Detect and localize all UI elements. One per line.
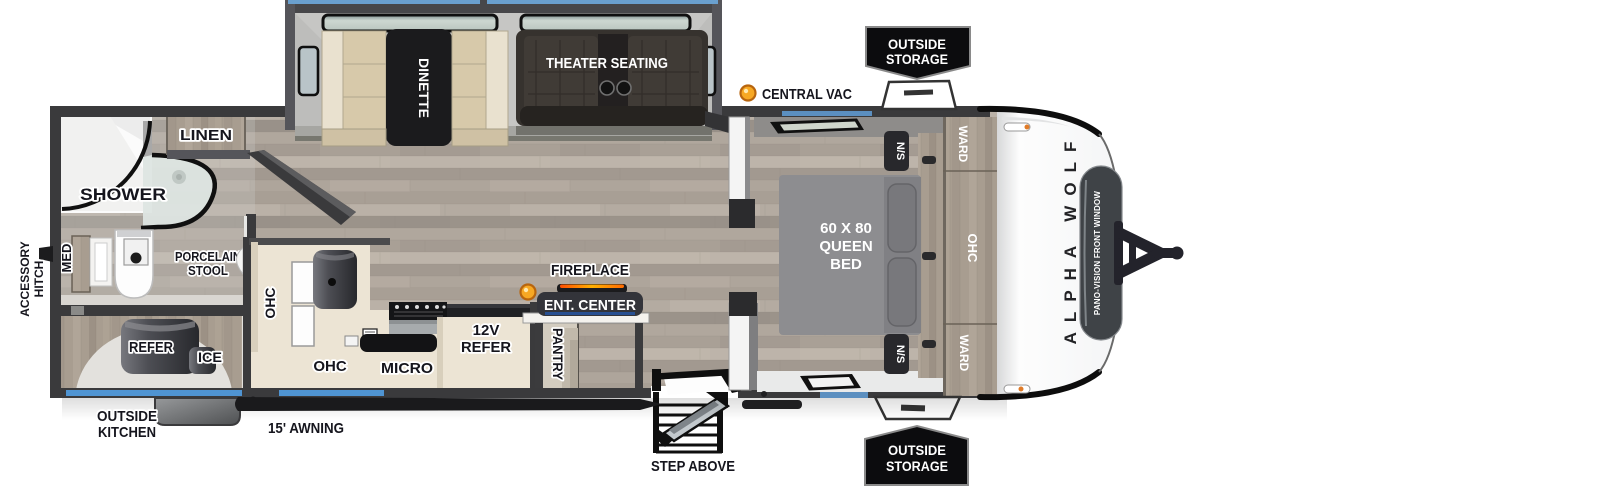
svg-text:PANTRY: PANTRY <box>550 328 566 381</box>
svg-text:OUTSIDE: OUTSIDE <box>97 408 157 425</box>
svg-text:OUTSIDE: OUTSIDE <box>888 37 946 52</box>
svg-text:PANO-VISION FRONT WINDOW: PANO-VISION FRONT WINDOW <box>1093 191 1102 315</box>
svg-text:WARD: WARD <box>956 126 970 163</box>
svg-text:QUEEN: QUEEN <box>819 238 872 255</box>
svg-text:BED: BED <box>830 256 862 273</box>
svg-text:STOOL: STOOL <box>188 263 228 278</box>
svg-text:MICRO: MICRO <box>381 360 433 377</box>
svg-text:OUTSIDE: OUTSIDE <box>888 443 946 458</box>
svg-text:OHC: OHC <box>262 287 278 318</box>
svg-text:REFER: REFER <box>129 339 173 356</box>
svg-text:STORAGE: STORAGE <box>886 52 948 67</box>
svg-text:HITCH: HITCH <box>32 261 46 298</box>
svg-text:CENTRAL VAC: CENTRAL VAC <box>762 86 852 103</box>
svg-text:THEATER SEATING: THEATER SEATING <box>546 56 668 72</box>
svg-text:LINEN: LINEN <box>180 127 232 144</box>
svg-text:PORCELAIN: PORCELAIN <box>175 249 241 264</box>
svg-text:60 X 80: 60 X 80 <box>820 220 872 237</box>
svg-text:OHC: OHC <box>313 358 347 375</box>
svg-text:ALPHA WOLF: ALPHA WOLF <box>1061 132 1080 345</box>
svg-text:FIREPLACE: FIREPLACE <box>551 262 629 279</box>
svg-text:15' AWNING: 15' AWNING <box>268 420 344 437</box>
svg-text:MED: MED <box>59 244 74 273</box>
svg-text:DINETTE: DINETTE <box>416 58 431 118</box>
svg-text:OHC: OHC <box>965 234 980 264</box>
svg-text:KITCHEN: KITCHEN <box>98 424 156 441</box>
svg-text:SHOWER: SHOWER <box>80 185 166 204</box>
svg-text:N/S: N/S <box>894 142 906 160</box>
svg-text:ENT. CENTER: ENT. CENTER <box>544 297 636 314</box>
svg-text:STORAGE: STORAGE <box>886 459 948 474</box>
svg-text:12V: 12V <box>473 322 500 339</box>
svg-text:ACCESSORY: ACCESSORY <box>18 241 32 317</box>
svg-text:N/S: N/S <box>894 345 906 363</box>
svg-text:STEP ABOVE: STEP ABOVE <box>651 458 735 475</box>
svg-text:ICE: ICE <box>198 349 222 365</box>
svg-text:WARD: WARD <box>957 335 971 372</box>
svg-text:REFER: REFER <box>461 339 511 356</box>
